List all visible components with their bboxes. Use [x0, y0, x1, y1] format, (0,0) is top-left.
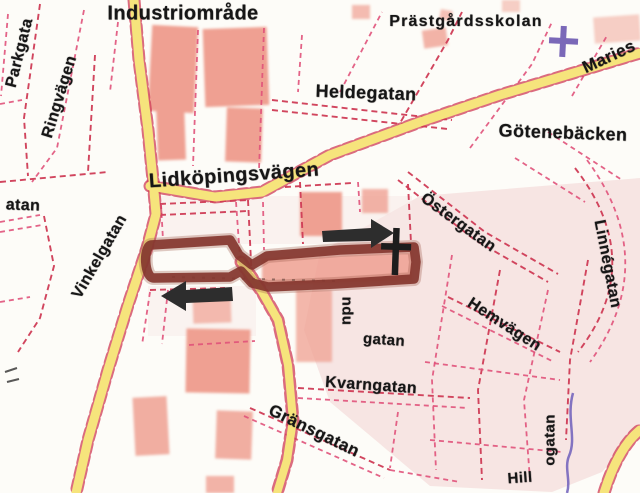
street-label-hillogatan-horizontal: Hill — [507, 469, 533, 488]
scanned-street-map: Industriområde Prästgårdsskolan Maries H… — [0, 0, 640, 493]
area-label-prastgardsskolan: Prästgårdsskolan — [389, 13, 542, 31]
street-label-hillogatan-vertical: ogatan — [542, 414, 559, 466]
street-label-heldegatan: Heldegatan — [315, 81, 417, 106]
street-label-gatan-west: atan — [5, 196, 40, 215]
church-cross-icon — [548, 25, 579, 57]
illegible-marks — [5, 368, 19, 382]
area-label-industriomrade: Industriområde — [107, 3, 258, 26]
street-label-industrigatan-horizontal: gatan — [362, 330, 405, 350]
street-label-industrigatan-vertical: ndu — [339, 297, 356, 326]
area-label-gotenebacken: Götenebäcken — [498, 120, 627, 145]
